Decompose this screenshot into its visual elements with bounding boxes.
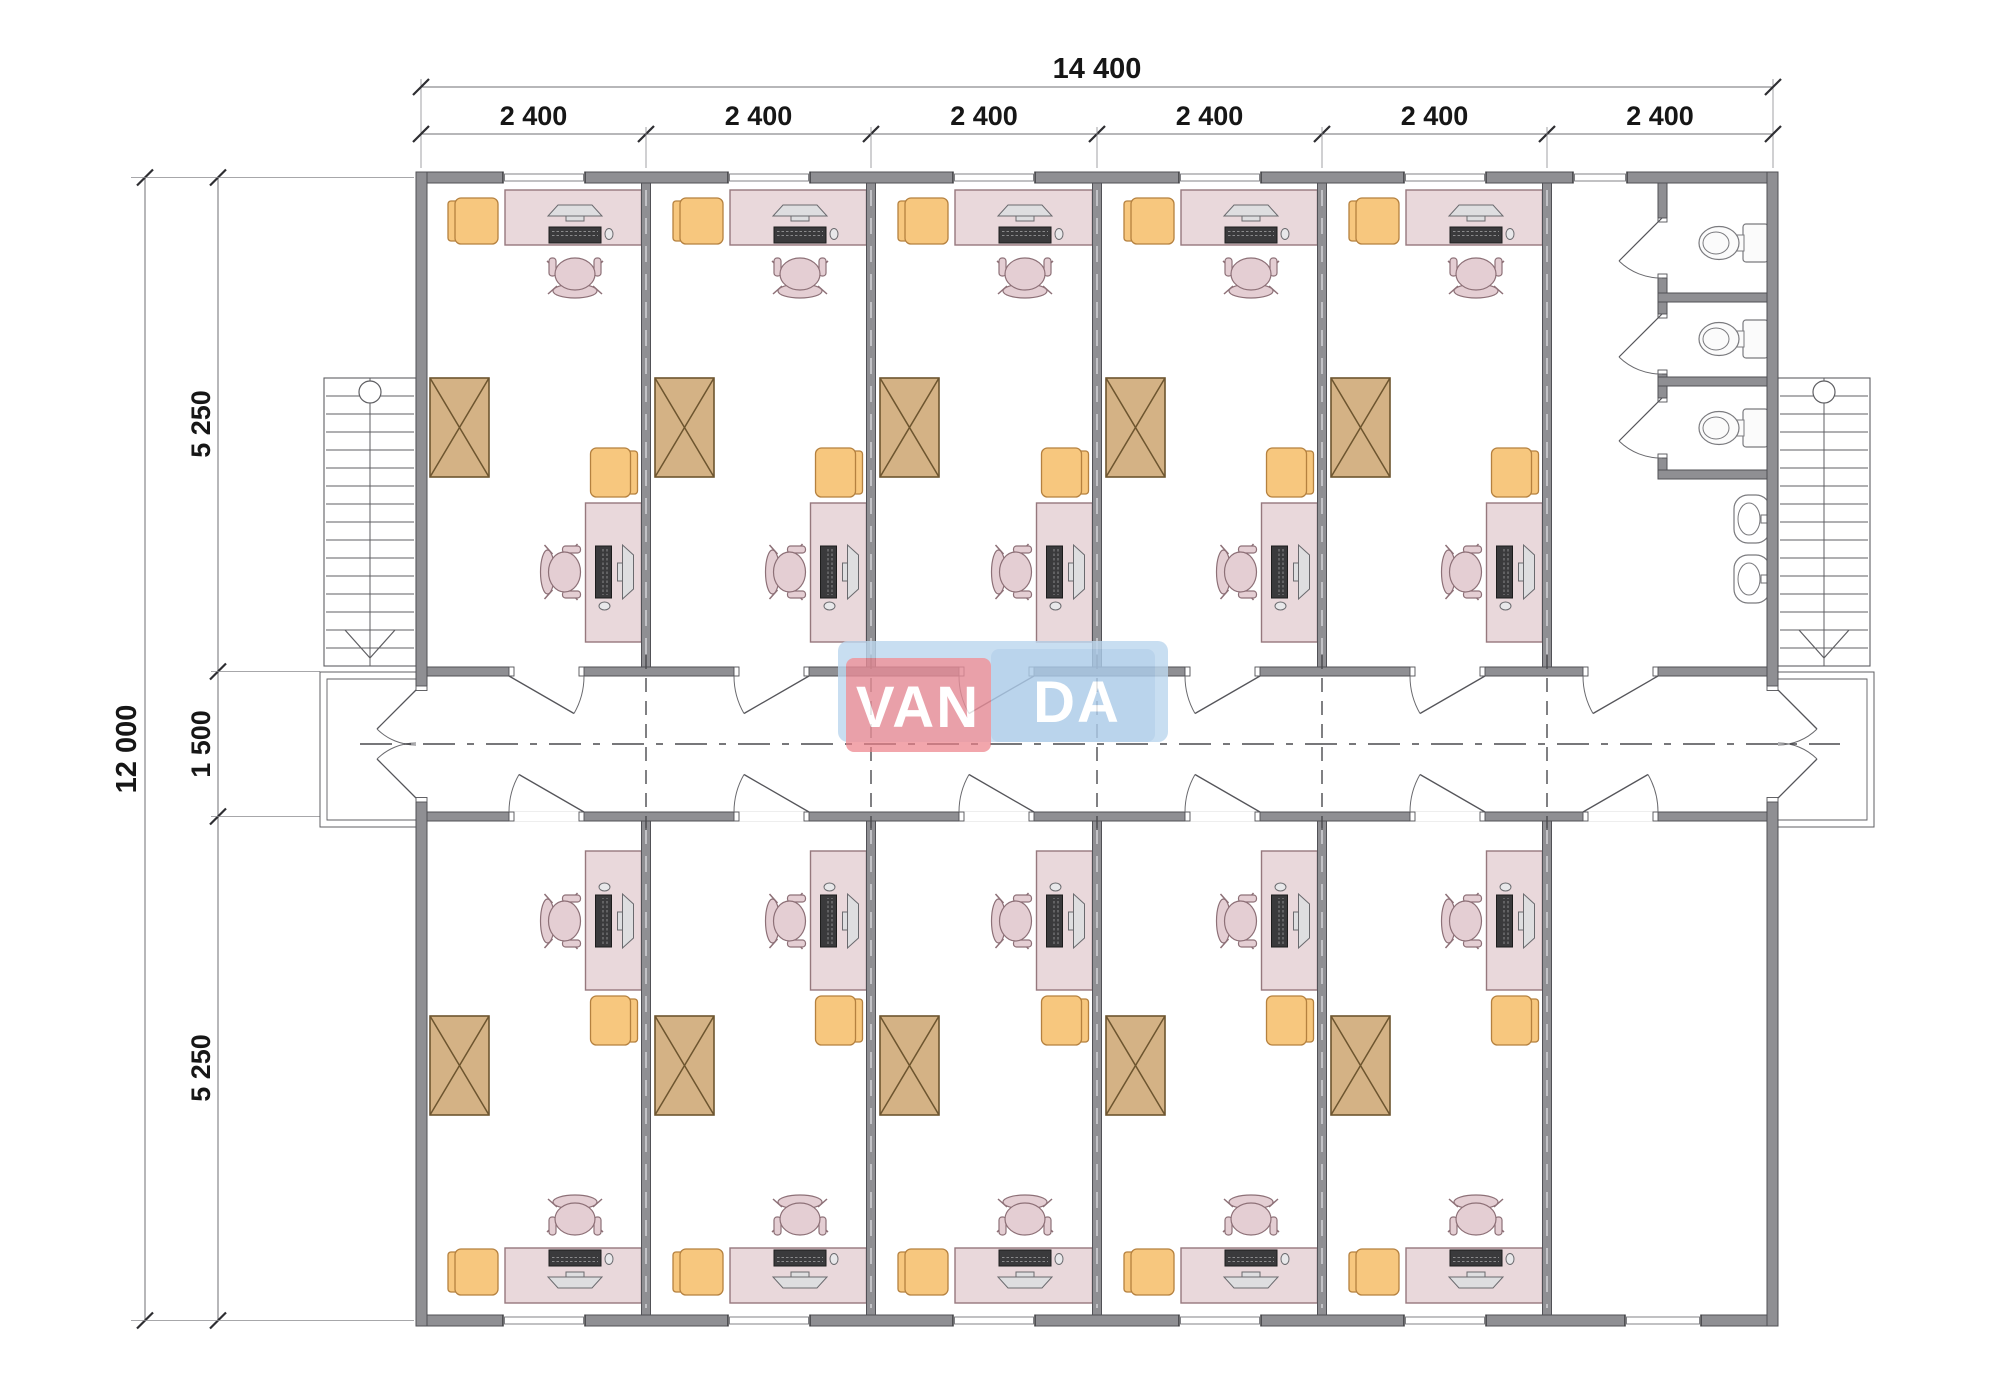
door-opening (734, 812, 809, 822)
monitor (548, 1277, 602, 1288)
monitor (623, 545, 634, 599)
monitor (548, 205, 602, 216)
mouse (1506, 229, 1514, 240)
monitor-stand (791, 216, 809, 221)
armchair (673, 198, 723, 244)
dimension-label: 2 400 (1176, 101, 1244, 131)
cabinet (1331, 378, 1390, 477)
monitor-stand (618, 912, 623, 930)
toilet-bowl (1699, 227, 1739, 260)
monitor-stand (618, 563, 623, 581)
window-glazing (730, 174, 809, 181)
armchair (1492, 996, 1539, 1045)
armchair (816, 996, 863, 1045)
armchair-seat (1267, 996, 1307, 1045)
monitor-stand (843, 912, 848, 930)
mouse (605, 1254, 613, 1265)
door-opening (1583, 812, 1658, 822)
mouse (824, 883, 835, 891)
sink (1734, 495, 1770, 543)
mouse (1275, 602, 1286, 610)
chair-seat (1000, 901, 1032, 941)
office-chair (772, 1195, 828, 1235)
armchair-seat (1492, 996, 1532, 1045)
armchair (816, 448, 863, 497)
chair-seat (549, 552, 581, 592)
armchair-seat (816, 448, 856, 497)
armchair-seat (1042, 996, 1082, 1045)
door-jamb (1658, 274, 1667, 278)
door-jamb (1410, 812, 1415, 821)
armchair (1349, 1249, 1399, 1295)
door-opening (509, 812, 584, 822)
mouse (1275, 883, 1286, 891)
door-jamb (804, 667, 809, 676)
dimension-label: 2 400 (950, 101, 1018, 131)
armchair (591, 448, 638, 497)
monitor (623, 894, 634, 948)
dimension-label: 1 500 (186, 710, 216, 778)
door-jamb (416, 798, 427, 803)
chair-seat (1456, 258, 1496, 290)
monitor-stand (566, 216, 584, 221)
armchair (448, 198, 498, 244)
door-opening (1410, 812, 1485, 822)
office-chair (997, 1195, 1053, 1235)
chair-seat (774, 901, 806, 941)
cabinet (655, 378, 714, 477)
door-jamb (1658, 454, 1667, 458)
chair-seat (1231, 258, 1271, 290)
cabinet (880, 378, 939, 477)
mouse (824, 602, 835, 610)
armchair-seat (1131, 1249, 1174, 1295)
plan-root: 14 4002 4002 4002 4002 4002 4002 40012 0… (0, 0, 2000, 1380)
dimension-label: 14 400 (1053, 53, 1142, 85)
door-opening (1185, 812, 1260, 822)
door-jamb (1029, 812, 1034, 821)
window-glazing (1406, 1317, 1485, 1324)
armchair-seat (1356, 1249, 1399, 1295)
monitor (1449, 1277, 1503, 1288)
window-glazing (1627, 1317, 1700, 1324)
office-chair (547, 258, 603, 298)
monitor (1449, 205, 1503, 216)
chair-seat (1225, 552, 1257, 592)
office-chair (547, 1195, 603, 1235)
door-jamb (734, 812, 739, 821)
door-opening (734, 666, 809, 678)
mouse (1500, 883, 1511, 891)
chair-seat (1456, 1203, 1496, 1235)
stair-newel-circle (359, 381, 381, 403)
chair-seat (555, 1203, 595, 1235)
monitor-stand (1294, 912, 1299, 930)
chair-seat (1450, 552, 1482, 592)
chair-seat (549, 901, 581, 941)
chair-seat (1000, 552, 1032, 592)
door-opening (1410, 666, 1485, 678)
dimension-label: 2 400 (725, 101, 793, 131)
monitor (998, 205, 1052, 216)
stall-divider-wall (1658, 293, 1767, 302)
logo-text-right: DA (1033, 670, 1121, 735)
monitor (1224, 205, 1278, 216)
door-jamb (1653, 812, 1658, 821)
mouse (1050, 883, 1061, 891)
monitor-stand (791, 1272, 809, 1277)
office-chair (997, 258, 1053, 298)
door-opening (959, 812, 1034, 822)
mouse (830, 1254, 838, 1265)
monitor-stand (1467, 1272, 1485, 1277)
armchair (1492, 448, 1539, 497)
office-chair (992, 893, 1032, 949)
cabinet (655, 1016, 714, 1115)
armchair-seat (816, 996, 856, 1045)
armchair (1267, 448, 1314, 497)
monitor-stand (1069, 563, 1074, 581)
dimension-label: 5 250 (186, 390, 216, 458)
monitor-stand (566, 1272, 584, 1277)
window-glazing (505, 174, 584, 181)
door-jamb (1255, 812, 1260, 821)
door-jamb (959, 812, 964, 821)
armchair-seat (680, 198, 723, 244)
office-chair (766, 893, 806, 949)
stall-divider-wall (1658, 377, 1767, 386)
door-jamb (1480, 667, 1485, 676)
door-jamb (1410, 667, 1415, 676)
logo-text-left: VAN (856, 675, 980, 740)
monitor-stand (1069, 912, 1074, 930)
door-jamb (1185, 667, 1190, 676)
armchair-seat (1492, 448, 1532, 497)
office-chair (1223, 1195, 1279, 1235)
monitor-stand (843, 563, 848, 581)
cabinet (430, 378, 489, 477)
window-glazing (505, 1317, 584, 1324)
stall-bottom-wall (1658, 470, 1767, 479)
office-chair (772, 258, 828, 298)
armchair-seat (1267, 448, 1307, 497)
monitor (773, 205, 827, 216)
chair-seat (780, 258, 820, 290)
door-jamb (579, 812, 584, 821)
office-chair (1448, 258, 1504, 298)
window-glazing (1406, 174, 1485, 181)
armchair-seat (455, 198, 498, 244)
mouse (1281, 229, 1289, 240)
office-chair (766, 544, 806, 600)
door-jamb (579, 667, 584, 676)
armchair (591, 996, 638, 1045)
armchair-seat (591, 448, 631, 497)
landing-outline (1778, 672, 1874, 827)
cabinet (1106, 1016, 1165, 1115)
armchair-seat (1131, 198, 1174, 244)
mouse (1506, 1254, 1514, 1265)
armchair-seat (591, 996, 631, 1045)
door-jamb (416, 686, 427, 691)
door-jamb (1480, 812, 1485, 821)
door-jamb (1767, 798, 1778, 803)
landing-outline (320, 672, 416, 827)
armchair (1349, 198, 1399, 244)
monitor (848, 894, 859, 948)
dimension-label: 5 250 (186, 1034, 216, 1102)
mouse (1281, 1254, 1289, 1265)
monitor (998, 1277, 1052, 1288)
office-chair (1448, 1195, 1504, 1235)
door-opening (509, 666, 584, 678)
door-jamb (509, 812, 514, 821)
monitor (773, 1277, 827, 1288)
monitor (1074, 894, 1085, 948)
monitor (848, 545, 859, 599)
stair-newel-circle (1813, 381, 1835, 403)
door-jamb (1583, 667, 1588, 676)
stair-landing (320, 672, 416, 827)
monitor-stand (1016, 1272, 1034, 1277)
monitor (1074, 545, 1085, 599)
monitor (1524, 545, 1535, 599)
armchair (898, 1249, 948, 1295)
door-opening (1583, 666, 1658, 678)
office-chair (541, 893, 581, 949)
chair-seat (555, 258, 595, 290)
office-chair (1217, 544, 1257, 600)
logo-watermark: VANDA (838, 641, 1168, 752)
window-glazing (730, 1317, 809, 1324)
mouse (1050, 602, 1061, 610)
office-chair (541, 544, 581, 600)
window-glazing (1181, 174, 1260, 181)
office-chair (1442, 544, 1482, 600)
armchair (1042, 996, 1089, 1045)
monitor-stand (1016, 216, 1034, 221)
cabinet (1331, 1016, 1390, 1115)
window-glazing (1181, 1317, 1260, 1324)
armchair-seat (455, 1249, 498, 1295)
door-jamb (1583, 812, 1588, 821)
armchair (448, 1249, 498, 1295)
door-opening (1658, 218, 1668, 278)
office-chair (992, 544, 1032, 600)
chair-seat (1005, 258, 1045, 290)
armchair-seat (1042, 448, 1082, 497)
toilet-tank (1743, 320, 1768, 358)
toilet-tank (1743, 409, 1768, 447)
toilet-tank (1743, 224, 1768, 262)
armchair-seat (1356, 198, 1399, 244)
door-jamb (1658, 370, 1667, 374)
armchair (673, 1249, 723, 1295)
chair-seat (1005, 1203, 1045, 1235)
monitor (1524, 894, 1535, 948)
door-jamb (734, 667, 739, 676)
mouse (1500, 602, 1511, 610)
window-glazing (1575, 174, 1626, 181)
door-opening (1185, 666, 1260, 678)
cabinet (880, 1016, 939, 1115)
door-jamb (1653, 667, 1658, 676)
armchair-seat (680, 1249, 723, 1295)
monitor (1299, 545, 1310, 599)
cabinet (430, 1016, 489, 1115)
armchair (1124, 198, 1174, 244)
armchair (1124, 1249, 1174, 1295)
stall-front-wall (1658, 183, 1667, 218)
door-jamb (509, 667, 514, 676)
chair-seat (1225, 901, 1257, 941)
toilet-bowl (1699, 412, 1739, 445)
chair-seat (1231, 1203, 1271, 1235)
office-chair (1223, 258, 1279, 298)
mouse (830, 229, 838, 240)
monitor-stand (1294, 563, 1299, 581)
monitor-stand (1242, 1272, 1260, 1277)
armchair (1267, 996, 1314, 1045)
monitor-stand (1467, 216, 1485, 221)
floor-plan-canvas: 14 4002 4002 4002 4002 4002 4002 40012 0… (0, 0, 2000, 1380)
toilet-bowl (1699, 323, 1739, 356)
door-jamb (1255, 667, 1260, 676)
door-opening (1658, 314, 1668, 374)
mouse (1055, 229, 1063, 240)
cabinet (1106, 378, 1165, 477)
armchair-seat (905, 198, 948, 244)
door-jamb (804, 812, 809, 821)
armchair (898, 198, 948, 244)
exterior-wall-bottom (416, 1315, 1778, 1326)
monitor (1299, 894, 1310, 948)
sink (1734, 555, 1770, 603)
staircase (1778, 378, 1870, 666)
chair-seat (774, 552, 806, 592)
mouse (1055, 1254, 1063, 1265)
chair-seat (1450, 901, 1482, 941)
door-jamb (1767, 686, 1778, 691)
monitor (1224, 1277, 1278, 1288)
window-glazing (955, 1317, 1034, 1324)
mouse (599, 602, 610, 610)
armchair-seat (905, 1249, 948, 1295)
mouse (605, 229, 613, 240)
office-chair (1217, 893, 1257, 949)
armchair (1042, 448, 1089, 497)
dimension-label: 2 400 (1626, 101, 1694, 131)
stair-landing (1778, 672, 1874, 827)
floor-plan: 14 4002 4002 4002 4002 4002 4002 40012 0… (0, 0, 2000, 1380)
staircase (324, 378, 416, 666)
monitor-stand (1519, 563, 1524, 581)
door-jamb (1185, 812, 1190, 821)
dimension-label: 12 000 (111, 705, 143, 794)
dimension-label: 2 400 (500, 101, 568, 131)
monitor-stand (1242, 216, 1260, 221)
office-chair (1442, 893, 1482, 949)
mouse (599, 883, 610, 891)
dimension-label: 2 400 (1401, 101, 1469, 131)
chair-seat (780, 1203, 820, 1235)
door-opening (1658, 398, 1668, 458)
window-glazing (955, 174, 1034, 181)
monitor-stand (1519, 912, 1524, 930)
